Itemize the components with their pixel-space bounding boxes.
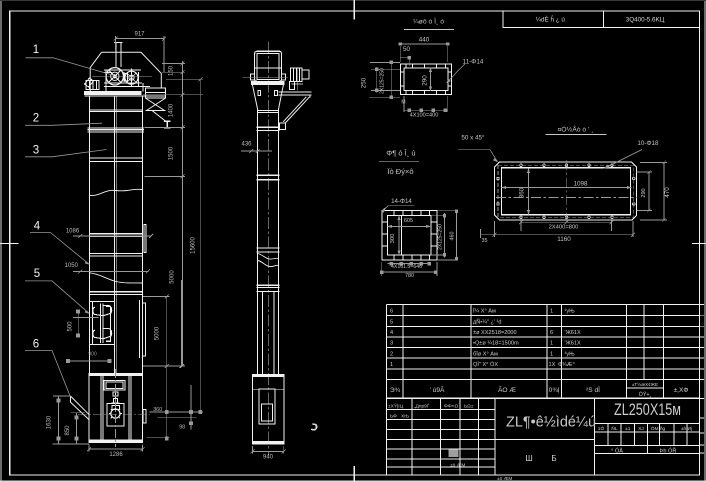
svg-text:±ō ÆΜ: ±ō ÆΜ [450,463,465,469]
svg-text:±ō ÆΜ: ±ō ÆΜ [497,476,512,482]
svg-text:±T½æX¢ЖЕ: ±T½æX¢ЖЕ [632,381,658,387]
svg-text:ZL¶•ê½ìdé¼ú: ZL¶•ê½ìdé¼ú [506,415,596,431]
svg-text:98: 98 [179,425,185,431]
svg-text:50: 50 [403,46,411,53]
svg-text:2X125=250: 2X125=250 [380,68,386,94]
svg-text:6: 6 [550,330,553,336]
svg-text:Ш: Ш [525,454,532,463]
svg-text:дÑ•¼" ¿' ¹d: дÑ•¼" ¿' ¹d [473,319,501,326]
svg-text:ÓΫ+¸: ÓΫ+¸ [639,391,652,398]
svg-text:300: 300 [390,234,396,244]
svg-text:3: 3 [390,341,393,347]
svg-text:бÏø X° Ам: бÏø X° Ам [473,350,498,357]
svg-text:440: 440 [419,37,430,44]
svg-text:470: 470 [664,187,671,198]
svg-text:¤Ó½Åò ò ' ¸: ¤Ó½Åò ò ' ¸ [557,125,593,134]
svg-text:XJ: XJ [638,426,644,432]
svg-text:1: 1 [550,341,553,347]
svg-text:35: 35 [482,238,488,244]
svg-text:Φ¶ ó Ì¸ ú: Φ¶ ó Ì¸ ú [386,148,415,157]
svg-text:ЬΩ±: ЬΩ± [464,404,474,410]
svg-text:1630: 1630 [47,415,53,429]
svg-text:900: 900 [88,352,97,358]
svg-text:917: 917 [134,32,145,38]
svg-text:5000: 5000 [155,326,161,340]
svg-text:ǪÏ" X° ÓΧ: ǪÏ" X° ÓΧ [473,361,498,368]
svg-text:11-Φ14: 11-Φ14 [463,59,484,66]
svg-text:1500: 1500 [169,146,175,160]
svg-text:460: 460 [450,232,456,241]
svg-text:4: 4 [34,221,41,233]
svg-text:ХЊ: ХЊ [401,414,409,420]
svg-text:6: 6 [390,309,393,315]
svg-text:1050: 1050 [65,263,79,269]
svg-text:¼dÈ ĥ ¿ ú: ¼dÈ ĥ ¿ ú [536,14,566,23]
svg-text:50 x 45°: 50 x 45° [461,134,485,142]
svg-text:Б: Б [551,454,556,463]
svg-text:Þh ÓŘ: Þh ÓŘ [660,446,677,454]
svg-text:150: 150 [169,65,175,76]
svg-text:15600: 15600 [191,236,197,253]
svg-text:1160: 1160 [557,236,571,243]
svg-text:1: 1 [550,309,553,315]
svg-text:5000: 5000 [170,270,176,284]
svg-text:605: 605 [404,218,413,224]
svg-text:1X: 1X [549,362,556,368]
svg-text:' ú9Ã: ' ú9Ã [430,385,445,394]
svg-text:1098: 1098 [573,181,588,188]
svg-text:ÑL: ÑL [611,425,617,432]
svg-text:Ïò Đý×ô: Ïò Đý×ô [387,167,413,176]
svg-text:ÓΜ ñg: ÓΜ ñg [651,425,666,432]
svg-text:ZL250X15м: ZL250X15м [614,400,681,419]
svg-text:4X100=400: 4X100=400 [410,113,439,119]
svg-text:290: 290 [422,75,429,86]
svg-text:1: 1 [390,362,393,368]
svg-text:3: 3 [33,145,39,157]
svg-text:²Ѕ dЇ: ²Ѕ dЇ [586,386,600,394]
svg-text:±ΧΫ|IЦ: ±ΧΫ|IЦ [388,403,404,410]
svg-text:436: 436 [241,141,252,147]
svg-text:2X400=800: 2X400=800 [549,225,579,231]
svg-text:2X125=250: 2X125=250 [438,224,444,250]
svg-text:3Q400-5.6ΚЦ: 3Q400-5.6ΚЦ [626,16,665,23]
svg-text:'Ж61Х: 'Ж61Х [565,341,581,347]
svg-text:1: 1 [550,351,553,357]
svg-text:„Дпр9Ѓ: „Дпр9Ѓ [414,403,430,410]
svg-text:±ø XX2518=2000: ±ø XX2518=2000 [473,330,517,336]
svg-text:¼øô ó Ì¸ ó: ¼øô ó Ì¸ ó [413,16,444,25]
svg-text:¹уЊ: ¹уЊ [565,351,576,357]
svg-text:¹уЊ: ¹уЊ [565,309,576,315]
svg-text:±1: ±1 [625,426,631,432]
svg-text:'Ж61Х: 'Ж61Х [565,330,581,336]
svg-text:±h Иj: ±h Иj [681,426,692,432]
svg-text:0¾ļ: 0¾ļ [549,387,560,394]
svg-text:2: 2 [33,113,39,125]
svg-text:14-Φ14: 14-Φ14 [391,198,412,205]
svg-text:10-Φ18: 10-Φ18 [637,140,659,147]
svg-text:250: 250 [361,77,368,88]
svg-text:ΦΦ×Ω: ΦΦ×Ω [444,404,458,410]
svg-text:2: 2 [390,351,393,357]
svg-text:5: 5 [34,268,40,280]
svg-text:1400: 1400 [169,103,175,117]
svg-text:ÃО Æ: ÃО Æ [498,385,516,394]
svg-text:•Ǫ±ø ¼18=1500m: •Ǫ±ø ¼18=1500m [473,341,519,347]
svg-text:1: 1 [33,44,39,56]
svg-text:850: 850 [65,425,71,436]
svg-text:Э¾: Э¾ [390,387,401,394]
svg-text:±,XФ: ±,XФ [674,387,689,394]
svg-text:1Ó: 1Ó [598,425,605,432]
svg-text:M: M [401,100,405,106]
svg-text:940: 940 [263,455,274,461]
svg-text:1086: 1086 [66,229,80,235]
svg-text:4X161.5=646: 4X161.5=646 [391,264,422,270]
svg-text:° ÓÅ: ° ÓÅ [611,447,623,454]
svg-text:360: 360 [519,187,526,198]
svg-text:4: 4 [390,330,393,336]
svg-text:290: 290 [641,188,647,197]
svg-text:5: 5 [390,320,393,326]
svg-text:Ï¼ X° Ам: Ï¼ X° Ам [473,308,496,315]
svg-text:6: 6 [33,339,39,351]
svg-text:ЬФ: ЬФ [390,414,397,420]
svg-text:Ф¾Æ°: Ф¾Æ° [558,362,575,368]
svg-text:1286: 1286 [109,452,123,458]
svg-text:500: 500 [68,321,74,332]
svg-text:780: 780 [405,273,414,279]
svg-text:360: 360 [153,407,162,413]
